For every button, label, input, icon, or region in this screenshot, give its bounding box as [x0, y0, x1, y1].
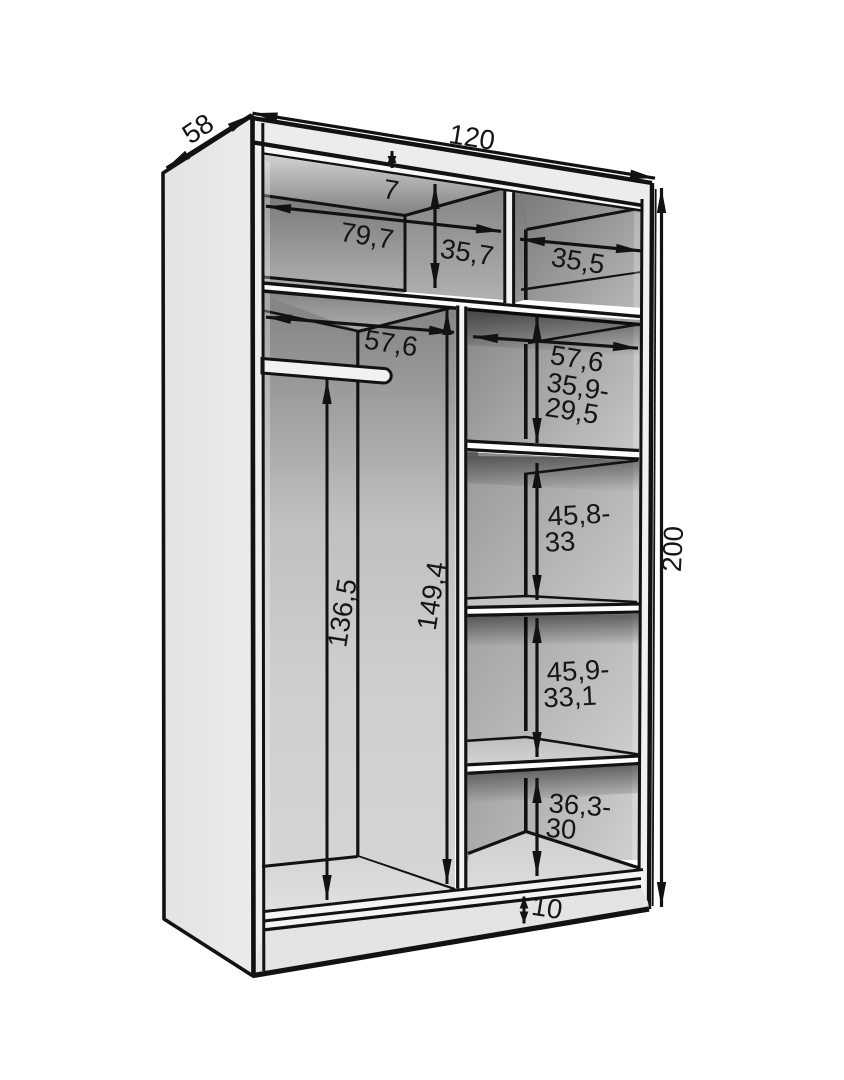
svg-text:30: 30 [545, 812, 578, 845]
svg-text:33,1: 33,1 [542, 680, 597, 714]
svg-text:33: 33 [544, 525, 576, 558]
svg-text:200: 200 [656, 525, 689, 572]
svg-text:10: 10 [530, 890, 565, 925]
